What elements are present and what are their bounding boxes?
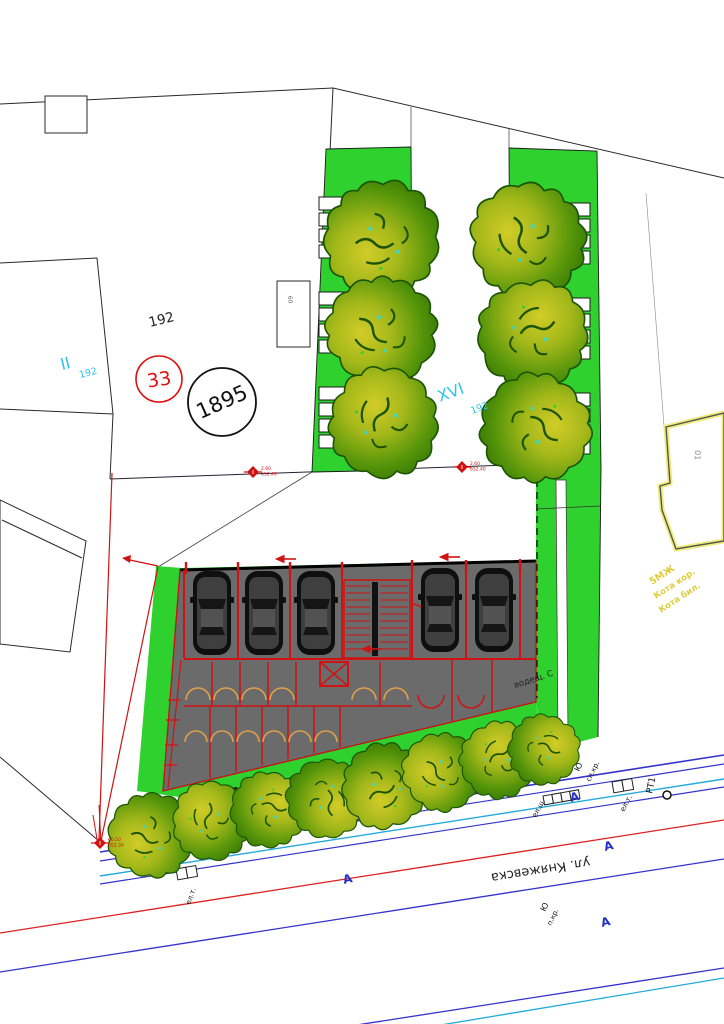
direction-arrow-4: А: [599, 914, 612, 930]
direction-arrow-3: А: [602, 838, 615, 854]
elevation-value: 2.60: [261, 466, 271, 472]
elevation-value: 652.40: [261, 472, 277, 478]
south-label-bottom: Ю: [539, 901, 551, 913]
rt1-point: [663, 791, 671, 799]
rt1-label: РТ1: [645, 776, 658, 794]
site-plan-canvas: ул. Княжевска ел.ш. ел.т. ел.т. сп.кр. Ю…: [0, 0, 724, 1024]
direction-arrow-1: А: [341, 871, 354, 887]
label-192: 192: [147, 309, 176, 331]
small-building-label: 60: [286, 296, 294, 304]
street-name-label: ул. Княжевска: [490, 854, 591, 884]
elevation-value: 652.40: [470, 467, 486, 473]
elevation-value: 2.60: [470, 461, 480, 467]
label-ii: II: [58, 353, 72, 374]
el-pole-right-label: ел.т.: [619, 794, 634, 813]
elevation-value: 652.30: [108, 843, 124, 849]
site-plan-drawing: ул. Княжевска ел.ш. ел.т. ел.т. сп.кр. Ю…: [0, 0, 724, 1024]
elevator-shaft: [320, 662, 348, 686]
trees-top: [305, 166, 613, 506]
label-xvi: XVI: [435, 379, 467, 406]
yellow-building: 01: [660, 413, 724, 549]
label-33: 33: [146, 367, 173, 392]
bus-stop-label: сп.кр.: [585, 760, 602, 783]
right-green-strip: [536, 468, 601, 751]
elevation-value: 60.50: [108, 837, 121, 843]
neighbor-building-label: 01: [693, 450, 702, 460]
label-ii-sub: 192: [78, 366, 98, 381]
